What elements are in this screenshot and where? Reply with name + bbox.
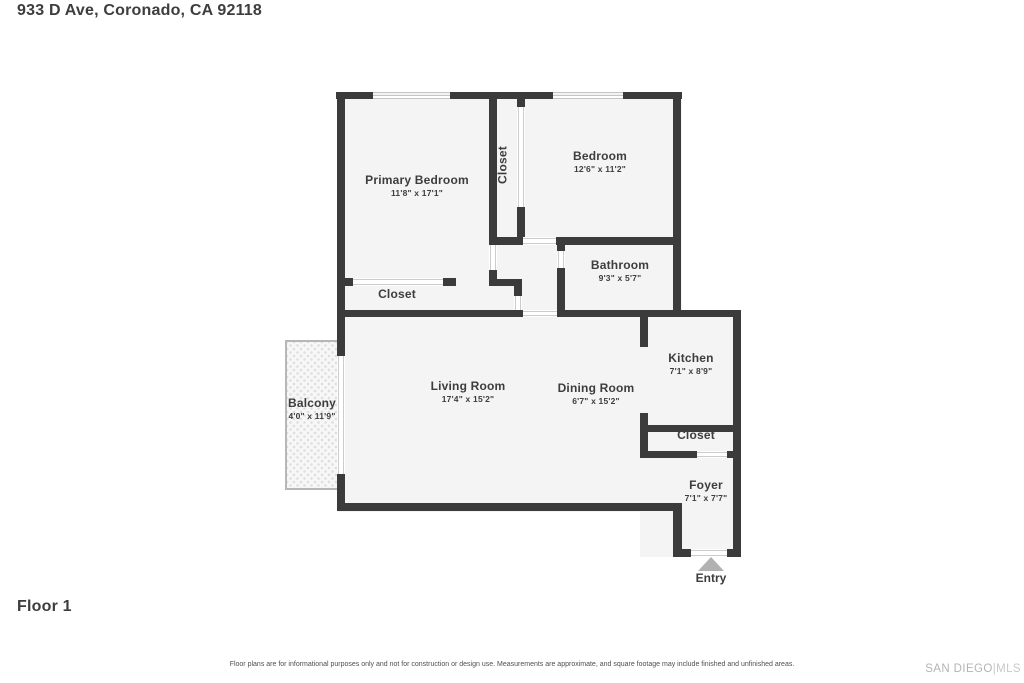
entry-arrow-icon: [698, 557, 724, 571]
window-primary-bedroom: [373, 92, 450, 99]
room-label-bedroom: Bedroom 12'6" x 11'2": [573, 149, 627, 175]
wall: [640, 413, 648, 458]
room-dims: 12'6" x 11'2": [573, 164, 627, 175]
sandiego-mls-logo: SAN DIEGO|MLS: [925, 663, 1021, 675]
wall: [517, 98, 525, 107]
room-label-balcony: Balcony 4'0" x 11'9": [288, 396, 336, 422]
room-name: Closet: [677, 428, 715, 443]
window-bedroom: [553, 92, 623, 99]
page-title: 933 D Ave, Coronado, CA 92118: [17, 2, 262, 20]
floor-plan-canvas: 933 D Ave, Coronado, CA 92118 Primary Be…: [0, 0, 1024, 683]
room-dims: 9'3" x 5'7": [591, 273, 649, 284]
room-dims: 4'0" x 11'9": [288, 411, 336, 422]
room-label-foyer: Foyer 7'1" x 7'7": [685, 478, 728, 504]
wall: [489, 270, 497, 279]
wall: [514, 279, 522, 296]
room-label-primary-bedroom: Primary Bedroom 11'8" x 17'1": [365, 173, 469, 199]
room-label-bathroom: Bathroom 9'3" x 5'7": [591, 258, 649, 284]
floor-label: Floor 1: [17, 598, 72, 616]
room-label-living-room: Living Room 17'4" x 15'2": [431, 379, 506, 405]
room-dims: 6'7" x 15'2": [558, 396, 635, 407]
room-name: Living Room: [431, 379, 506, 394]
sliding-door-hall-closet: [517, 107, 525, 207]
room-dims: 7'1" x 8'9": [668, 366, 713, 377]
room-name: Primary Bedroom: [365, 173, 469, 188]
door-opening-entry: [691, 549, 727, 557]
room-dims: 11'8" x 17'1": [365, 188, 469, 199]
sliding-door-primary-closet: [353, 278, 443, 286]
room-dims: 7'1" x 7'7": [685, 493, 728, 504]
wall: [443, 278, 456, 286]
wall: [673, 503, 682, 557]
room-label-hall-closet: Closet: [496, 146, 511, 184]
room-name: Closet: [378, 287, 416, 302]
entry-label: Entry: [696, 571, 727, 585]
room-name: Bathroom: [591, 258, 649, 273]
brand-secondary: MLS: [996, 663, 1021, 675]
door-opening-bedroom: [523, 237, 556, 245]
wall: [557, 268, 565, 317]
room-name: Foyer: [685, 478, 728, 493]
room-label-kitchen: Kitchen 7'1" x 8'9": [668, 351, 713, 377]
door-opening-bathroom: [557, 251, 565, 268]
door-opening-hall-closet-small: [514, 296, 522, 310]
room-dims: 17'4" x 15'2": [431, 394, 506, 405]
wall: [338, 503, 682, 511]
room-name: Balcony: [288, 396, 336, 411]
room-label-dining-room: Dining Room 6'7" x 15'2": [558, 381, 635, 407]
door-opening-primary-bedroom: [489, 245, 497, 270]
brand-primary: SAN DIEGO: [925, 663, 993, 675]
opening-hallway-living: [523, 310, 557, 317]
disclaimer-text: Floor plans are for informational purpos…: [0, 661, 1024, 668]
wall: [733, 310, 741, 557]
door-opening-entry-closet: [697, 451, 727, 458]
room-name: Bedroom: [573, 149, 627, 164]
sliding-door-balcony: [337, 356, 345, 474]
wall: [673, 92, 681, 317]
room-name: Dining Room: [558, 381, 635, 396]
room-label-entry-closet: Closet: [677, 428, 715, 443]
wall: [640, 317, 648, 347]
room-name: Kitchen: [668, 351, 713, 366]
room-name: Closet: [496, 146, 511, 184]
room-label-primary-closet: Closet: [378, 287, 416, 302]
